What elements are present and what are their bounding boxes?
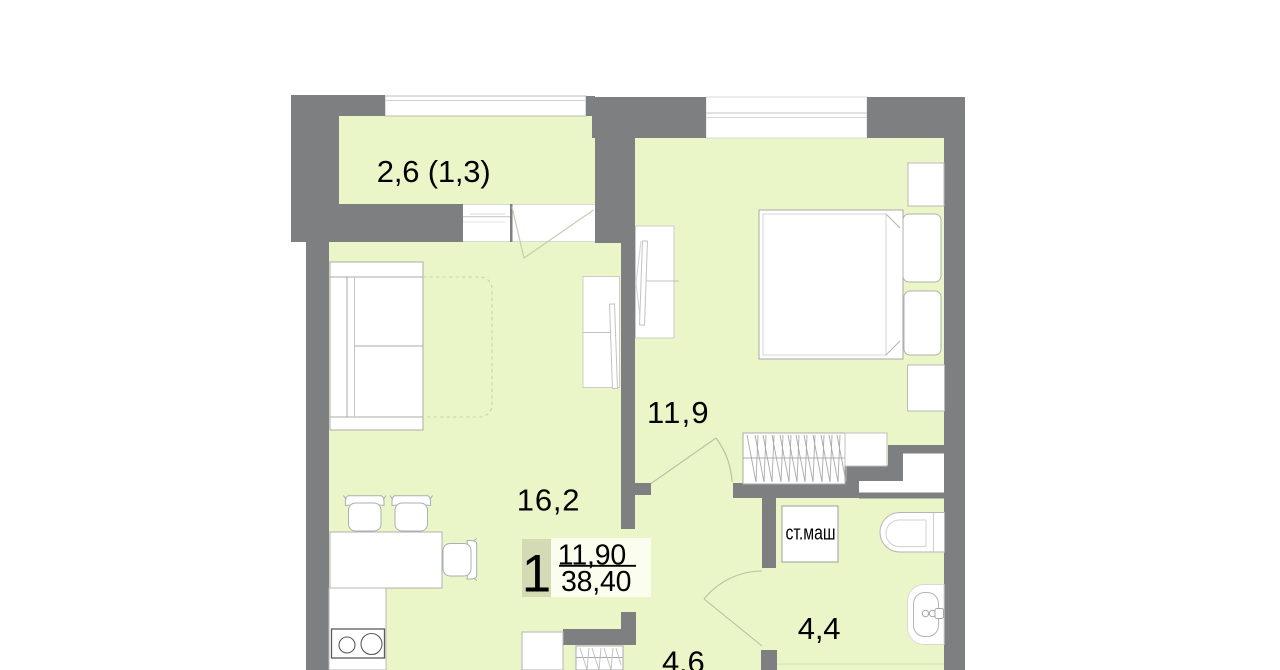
svg-text:11,9: 11,9 (647, 395, 710, 430)
svg-text:2,6 (1,3): 2,6 (1,3) (377, 154, 491, 189)
svg-text:ст.маш: ст.маш (786, 522, 836, 544)
svg-text:16,2: 16,2 (517, 483, 581, 518)
svg-text:4,4: 4,4 (798, 611, 841, 646)
svg-text:38,40: 38,40 (561, 566, 631, 598)
svg-text:4,6: 4,6 (662, 645, 705, 670)
svg-text:1: 1 (522, 545, 551, 604)
